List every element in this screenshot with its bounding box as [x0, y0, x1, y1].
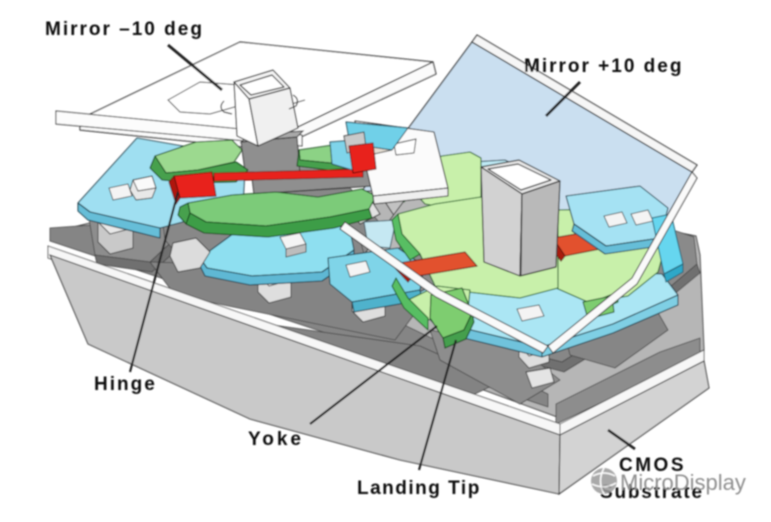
- svg-text:Yoke: Yoke: [248, 429, 304, 450]
- svg-text:Mirror –10 deg: Mirror –10 deg: [45, 19, 204, 40]
- svg-text:Mirror +10 deg: Mirror +10 deg: [524, 56, 683, 77]
- svg-text:Landing Tip: Landing Tip: [357, 478, 481, 499]
- svg-text:Hinge: Hinge: [94, 374, 157, 395]
- svg-text:MicroDisplay: MicroDisplay: [620, 470, 746, 495]
